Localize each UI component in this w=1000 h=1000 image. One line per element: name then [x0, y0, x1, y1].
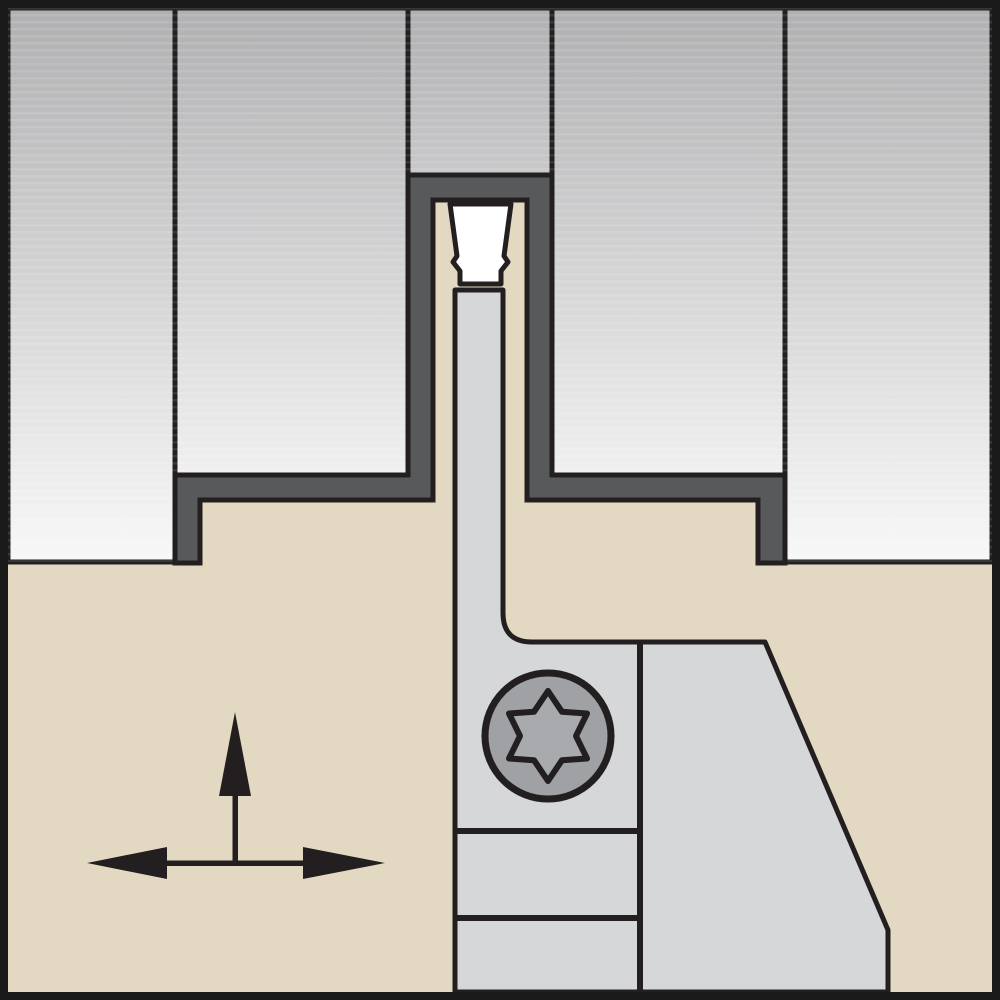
diagram-canvas [0, 0, 1000, 1000]
horizontal-arrow-shaft [155, 861, 320, 867]
grooving-tool-diagram [0, 0, 1000, 1000]
up-arrow-shaft [233, 794, 239, 866]
torx-screw [485, 673, 611, 799]
cutting-insert [450, 204, 511, 284]
